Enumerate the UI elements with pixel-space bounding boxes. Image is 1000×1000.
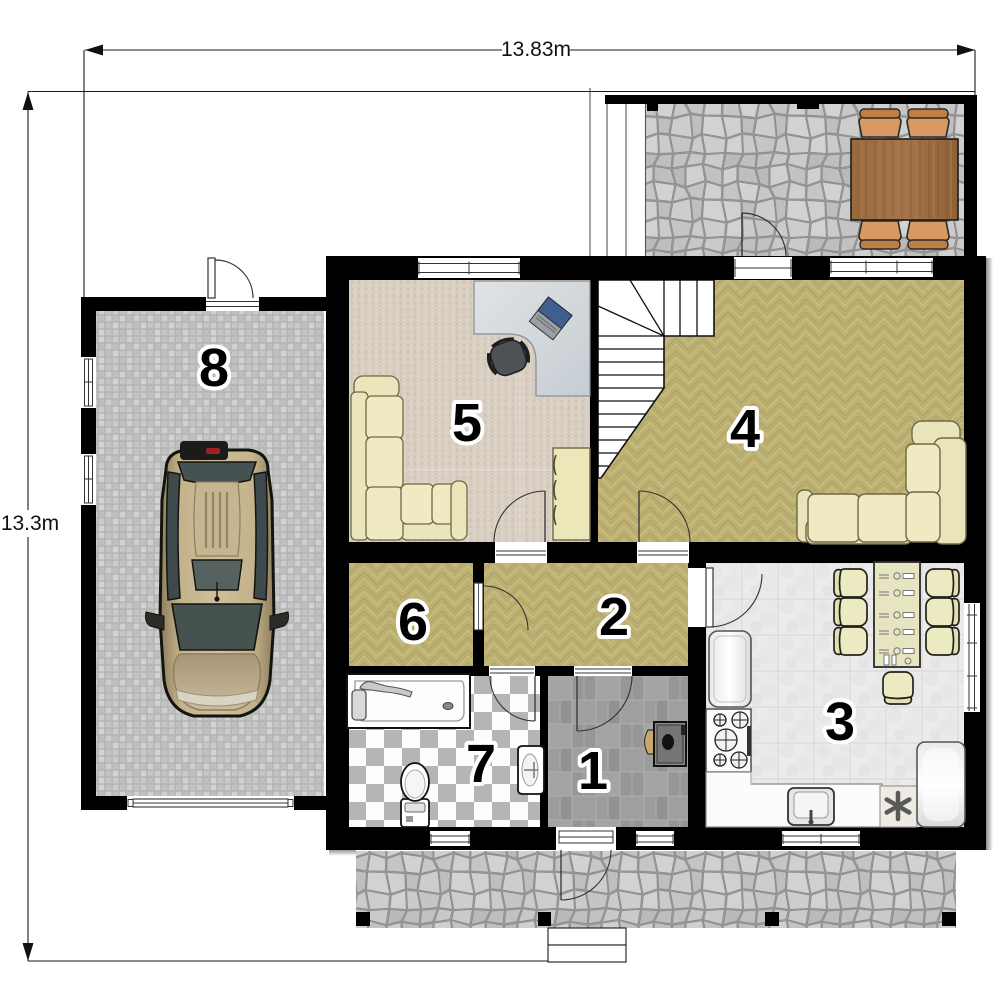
svg-text:6: 6 (398, 592, 428, 652)
svg-text:4: 4 (730, 399, 760, 459)
svg-text:3: 3 (825, 692, 855, 752)
svg-text:7: 7 (466, 734, 496, 794)
svg-text:1: 1 (578, 741, 608, 801)
svg-text:2: 2 (599, 587, 629, 647)
svg-text:5: 5 (452, 393, 482, 453)
svg-text:8: 8 (199, 338, 229, 398)
svg-text:13.3m: 13.3m (1, 512, 59, 535)
svg-text:13.83m: 13.83m (501, 38, 571, 61)
